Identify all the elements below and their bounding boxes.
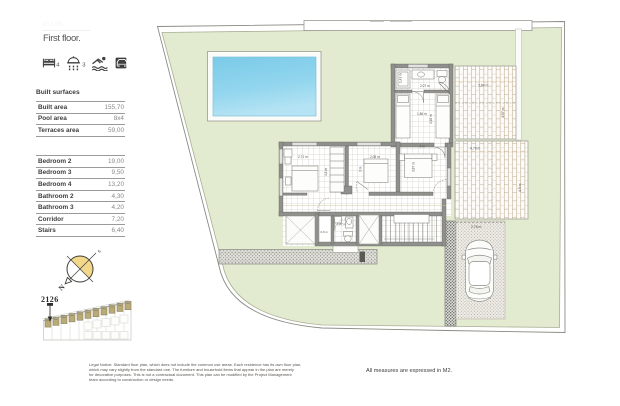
svg-text:s: s <box>97 248 103 254</box>
svg-text:2,71 m: 2,71 m <box>298 155 308 159</box>
svg-text:2,07 m: 2,07 m <box>420 84 430 88</box>
svg-text:4,6 m: 4,6 m <box>324 168 328 176</box>
svg-text:1,41 m: 1,41 m <box>399 73 403 83</box>
svg-text:0,9 m: 0,9 m <box>321 230 329 234</box>
svg-text:3 m: 3 m <box>359 166 363 172</box>
svg-text:3,87 m: 3,87 m <box>412 162 416 172</box>
svg-text:2,08 m: 2,08 m <box>370 155 380 159</box>
svg-text:4,46 m: 4,46 m <box>429 114 433 124</box>
svg-text:3: 3 <box>82 62 85 68</box>
svg-text:4: 4 <box>56 62 60 68</box>
svg-text:1,86 m: 1,86 m <box>417 112 427 116</box>
svg-text:2 m: 2 m <box>420 145 426 149</box>
svg-text:1,87 m: 1,87 m <box>337 222 346 226</box>
